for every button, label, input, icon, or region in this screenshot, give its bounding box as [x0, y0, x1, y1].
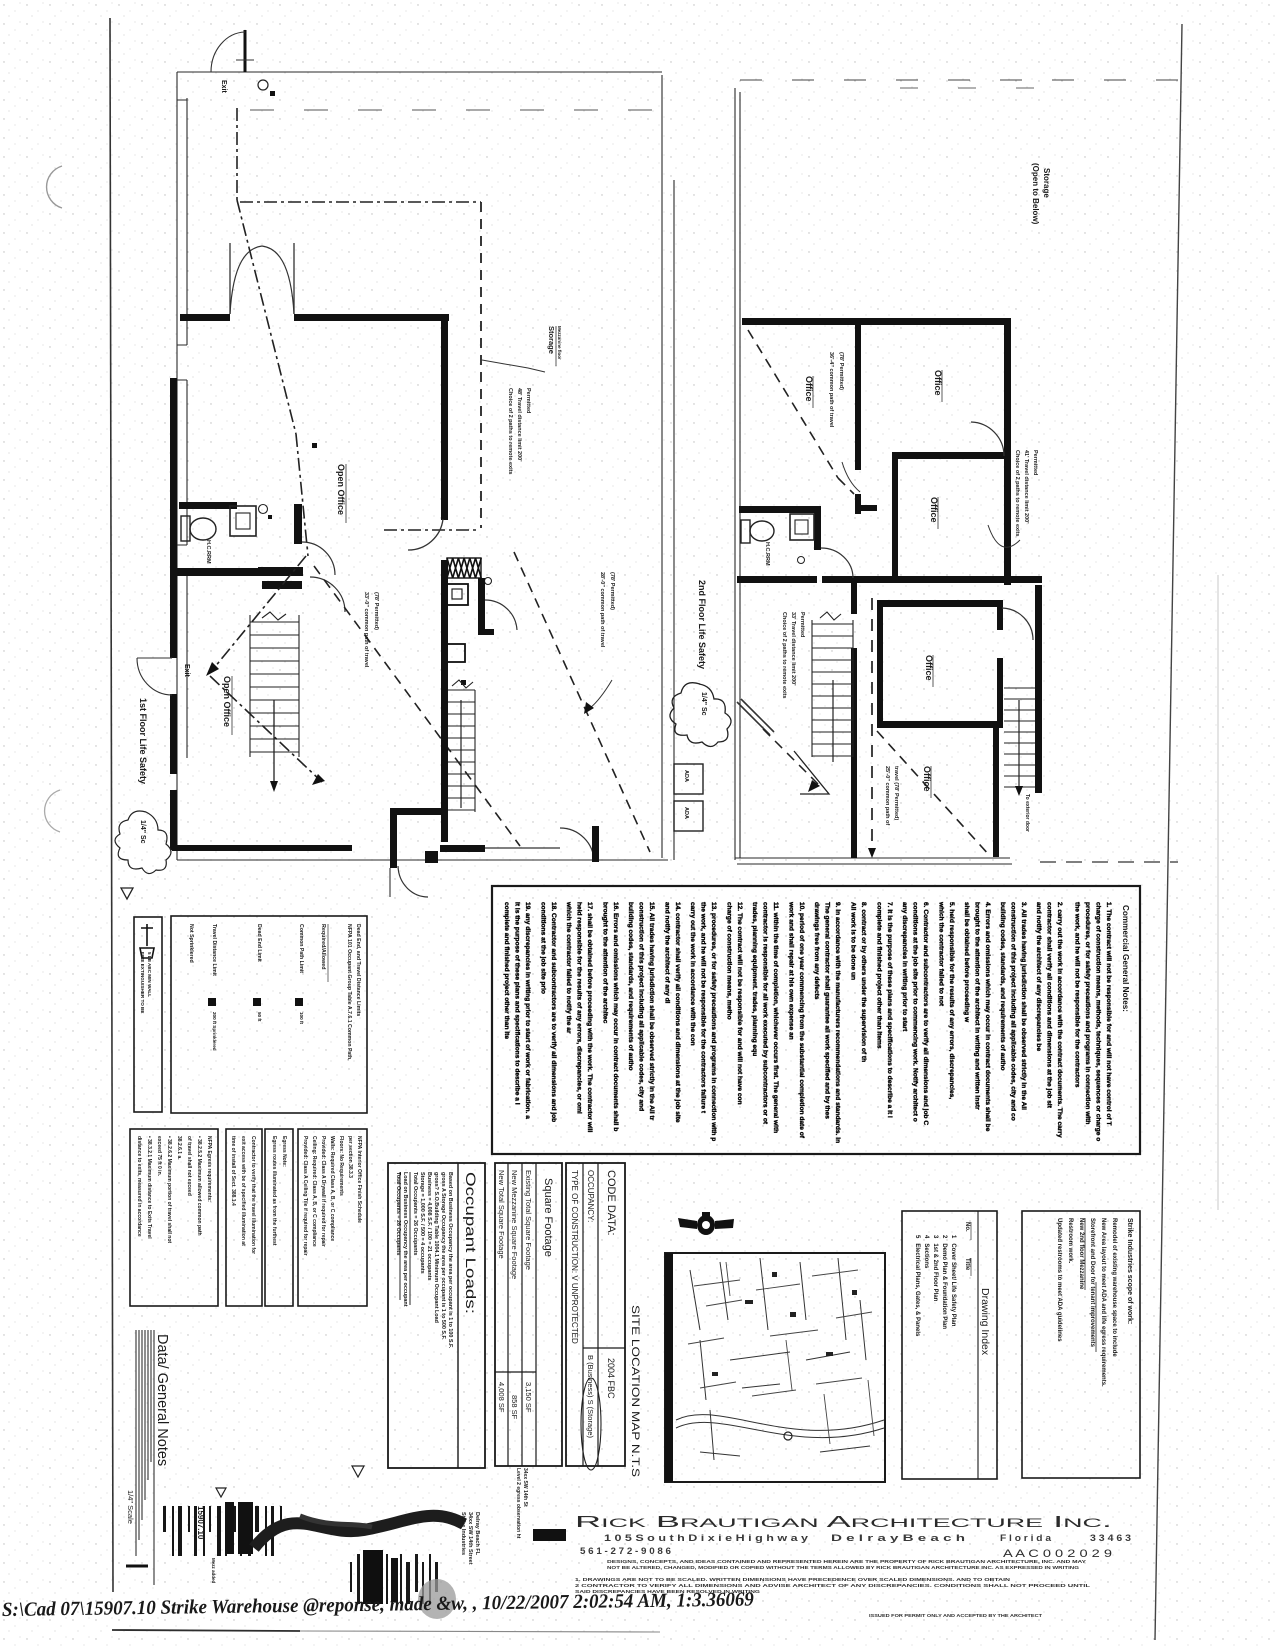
svg-text:Choice of 2 paths to remote ex: Choice of 2 paths to remote exits [507, 388, 513, 475]
svg-text:Remodel of existing warehouse: Remodel of existing warehouse space to i… [1111, 1218, 1117, 1357]
svg-text:TYPE OF CONSTRUCTION: V UNPRO: TYPE OF CONSTRUCTION: V UNPROTECTED [570, 1170, 579, 1344]
svg-text:carry out the work in accordan: carry out the work in accordance with th… [689, 902, 696, 1046]
svg-text:work and shall repair at his o: work and shall repair at his own expense… [788, 901, 795, 1040]
svg-text:Office: Office [933, 370, 943, 396]
svg-text:Dead End Limit: Dead End Limit [256, 924, 262, 962]
svg-text:• 38.2.5.2 Maximum allowed co: • 38.2.5.2 Maximum allowed common path [196, 1136, 202, 1236]
svg-text:conditions at the job site pri: conditions at the job site prio [540, 902, 547, 994]
svg-text:4,008 SF: 4,008 SF [497, 1382, 506, 1413]
svg-text:To exterior door: To exterior door [1024, 794, 1030, 832]
svg-text:Choice of 2 paths to remote ex: Choice of 2 paths to remote exits [781, 612, 787, 699]
svg-text:• 38.3.2.1 Maximum distance t: • 38.3.2.1 Maximum distance to Exits Tra… [146, 1136, 152, 1239]
svg-text:1 0 5 S o u t h D i x i e H: 1 0 5 S o u t h D i x i e H i g h w a y [604, 1533, 808, 1543]
svg-text:5 6 1 - 2 7 2 - 9 0 8 6: 5 6 1 - 2 7 2 - 9 0 8 6 [580, 1546, 671, 1556]
svg-text:time of install of Sect. 388.1: time of install of Sect. 388.1.4 [230, 1136, 236, 1206]
svg-text:10. period of one year commen: 10. period of one year commencing from t… [798, 902, 805, 1139]
svg-text:Commercial General Notes:: Commercial General Notes: [1121, 905, 1131, 1012]
svg-text:Level 2 egress observation ht: Level 2 egress observation ht [515, 1468, 521, 1539]
svg-text:Existing Total Square Footage: Existing Total Square Footage [524, 1170, 533, 1270]
svg-text:which the contractor failed to: which the contractor failed to not [938, 901, 945, 1007]
svg-text:2 CONTRACTOR TO VERIFY ALL DI: 2 CONTRACTOR TO VERIFY ALL DIMENSIONS AN… [575, 1583, 1090, 1588]
svg-text:ADA: ADA [683, 807, 689, 819]
svg-text:5 Electrical Plans, Gates, &: 5 Electrical Plans, Gates, & Panels [914, 1235, 920, 1337]
svg-text:SITE LOCATION MAP N.T.S: SITE LOCATION MAP N.T.S [629, 1305, 641, 1477]
svg-text:Based on Business Occupancy t: Based on Business Occupancy the area per… [447, 1172, 453, 1349]
svg-text:Strike Industries: Strike Industries [460, 1512, 466, 1555]
svg-text:1. DRAWINGS ARE NOT TO BE SCAL: 1. DRAWINGS ARE NOT TO BE SCALED. WRITTE… [575, 1577, 1011, 1582]
svg-text:3 1st & 2nd Floor Plan: 3 1st & 2nd Floor Plan [932, 1235, 938, 1302]
svg-text:8. contract or by others unde: 8. contract or by others under the super… [860, 902, 867, 1062]
svg-text:and notify the architect of an: and notify the architect of any di [664, 902, 671, 1004]
svg-text:2 Demo Plan & Foundation Pla: 2 Demo Plan & Foundation Plan [941, 1235, 947, 1329]
svg-text:OCCUPANCY:: OCCUPANCY: [586, 1170, 595, 1222]
svg-text:Egress routes illuminated as f: Egress routes illuminated as from the fu… [271, 1136, 277, 1246]
svg-text:3 3 4 6 3: 3 3 4 6 3 [1090, 1533, 1131, 1543]
svg-text:charge of construction means,: charge of construction means, metho [726, 902, 733, 1020]
svg-text:FIRE EXTINGUISHER TO BE: FIRE EXTINGUISHER TO BE [140, 952, 145, 1013]
svg-text:DESIGNS, CONCEPTS, AND IDEAS C: DESIGNS, CONCEPTS, AND IDEAS CONTAINED A… [607, 1559, 1086, 1564]
svg-text:6. Contractor and subcontract: 6. Contractor and subcontractors are to … [922, 902, 929, 1125]
svg-text:2nd Floor Life Safety: 2nd Floor Life Safety [697, 580, 707, 669]
svg-text:and notify the architect of an: and notify the architect of any discrepa… [1035, 902, 1042, 1051]
svg-text:NFPA 101 Occupant Group Table: NFPA 101 Occupant Group Table A.7.6.1 Co… [346, 924, 352, 1061]
svg-text:Egress Note:: Egress Note: [281, 1136, 287, 1167]
svg-text:Storage: Storage [547, 326, 556, 354]
svg-text:The general contractor shall g: The general contractor shall guarantee a… [824, 902, 831, 1119]
svg-text:Permitted: Permitted [525, 388, 531, 413]
svg-text:Storefront and Door for tenan: Storefront and Door for tenant improveme… [1089, 1218, 1095, 1348]
svg-text:brought to the attention of th: brought to the attention of the architec [602, 902, 609, 1024]
svg-text:New 2nd floor Mezzanine: New 2nd floor Mezzanine [1078, 1218, 1084, 1290]
svg-text:Common Path Limit: Common Path Limit [298, 924, 304, 973]
svg-text:Business = 4,008 S.F. / 100 =: Business = 4,008 S.F. / 100 = 21 occupan… [426, 1172, 432, 1280]
svg-text:25'-0" common path of: 25'-0" common path of [884, 766, 890, 825]
svg-text:16. Errors and omissions whic: 16. Errors and omissions which may occur… [612, 902, 619, 1131]
svg-text:Mezzanine floor: Mezzanine floor [557, 326, 562, 360]
svg-text:200 ft Sprinklered: 200 ft Sprinklered [212, 1012, 217, 1051]
svg-text:New Total Square Footage: New Total Square Footage [497, 1170, 506, 1259]
svg-text:41' Travel distance limit 200': 41' Travel distance limit 200' [1023, 450, 1029, 524]
svg-text:Exit: Exit [220, 80, 227, 94]
svg-text:7. It is the purpose of these: 7. It is the purpose of these plans and … [886, 902, 893, 1118]
svg-text:All work is to be done un: All work is to be done un [850, 902, 857, 980]
svg-text:38.2.6.1 a.: 38.2.6.1 a. [176, 1136, 182, 1160]
svg-text:15907.10: 15907.10 [196, 1506, 205, 1540]
svg-text:ISSUED FOR PERMIT ONLY AND ACC: ISSUED FOR PERMIT ONLY AND ACCEPTED BY T… [869, 1613, 1042, 1618]
svg-text:Mezz added: Mezz added [211, 1558, 216, 1584]
svg-text:Delray Beach FL: Delray Beach FL [474, 1512, 480, 1556]
svg-text:the work, and he will not be r: the work, and he will not be responsible… [700, 902, 707, 1114]
svg-text:Occupant Loads:: Occupant Loads: [463, 1172, 479, 1314]
svg-text:14. contractor shall verify a: 14. contractor shall verify all conditio… [674, 902, 681, 1123]
svg-text:travel (78' Permitted): travel (78' Permitted) [893, 766, 899, 820]
svg-text:Storage = 1,000 S.F. / 500 = 4: Storage = 1,000 S.F. / 500 = 4 occupants [419, 1172, 425, 1274]
svg-text:any discrepancies in writing p: any discrepancies in writing prior to st… [901, 902, 908, 1032]
svg-text:brought to the attention of th: brought to the attention of the architec… [974, 902, 981, 1110]
svg-text:48' Travel distance limit 200': 48' Travel distance limit 200' [516, 388, 522, 462]
svg-text:Travel Distance Limit: Travel Distance Limit [211, 924, 217, 976]
svg-text:Square Footage: Square Footage [542, 1178, 554, 1257]
svg-text:Required/Allowed: Required/Allowed [320, 924, 326, 970]
svg-text:2. carry out the work in acco: 2. carry out the work in accordance with… [1056, 902, 1063, 1138]
svg-text:858 SF: 858 SF [510, 1395, 519, 1420]
svg-text:building codes, standards, and: building codes, standards, and requireme… [627, 902, 634, 1071]
svg-text:held responsible for the resul: held responsible for the results of any … [576, 902, 583, 1114]
svg-text:construction of this project i: construction of this project including a… [1010, 902, 1017, 1121]
svg-text:Office: Office [929, 497, 939, 523]
svg-text:H.C.RRM: H.C.RRM [764, 542, 770, 566]
svg-text:13. procedures, or for safety: 13. procedures, or for safety precaution… [710, 902, 717, 1141]
svg-text:exit access with be of specifi: exit access with be of specified illumin… [240, 1136, 246, 1246]
svg-text:New Area layout to meet ADA an: New Area layout to meet ADA and life egr… [1100, 1218, 1106, 1387]
svg-text:procedures, or for safety prec: procedures, or for safety precautions an… [1084, 902, 1091, 1124]
svg-text:CODE DATA:: CODE DATA: [605, 1170, 617, 1236]
svg-text:15. All trades having jurisdi: 15. All trades having jurisdiction shall… [648, 902, 655, 1121]
svg-text:NFPA Interior Office Finish Sc: NFPA Interior Office Finish Schedule [356, 1136, 362, 1223]
svg-text:2004 FBC: 2004 FBC [606, 1358, 616, 1399]
svg-text:3,150 SF: 3,150 SF [524, 1382, 533, 1413]
svg-text:Office: Office [922, 766, 932, 792]
svg-text:Strike Industries scope of wor: Strike Industries scope of work: [1126, 1218, 1133, 1324]
svg-text:trades, planning equipment. t: trades, planning equipment. trades, plan… [751, 902, 758, 1056]
svg-text:Permitted: Permitted [799, 612, 805, 637]
svg-text:1/4" Sc: 1/4" Sc [139, 820, 146, 844]
svg-text:Updated restrooms to meet ADA: Updated restrooms to meet ADA guidelines [1056, 1218, 1062, 1342]
svg-text:(Open to Below): (Open to Below) [1031, 163, 1040, 225]
svg-text:Total Occupants = 26 Occupants: Total Occupants = 26 Occupants [412, 1172, 418, 1255]
svg-text:3. All trades having jurisdic: 3. All trades having jurisdiction shall … [1020, 902, 1027, 1110]
svg-text:(78' Permitted): (78' Permitted) [373, 592, 379, 630]
svg-text:F l o r i d a: F l o r i d a [1000, 1533, 1052, 1543]
svg-text:B (Business) S (Storage): B (Business) S (Storage) [586, 1355, 595, 1438]
svg-text:Provided: Class A Drywall if r: Provided: Class A Drywall if required fo… [320, 1136, 326, 1247]
svg-text:Load on Business Occupancy th: Load on Business Occupancy the area per … [402, 1172, 408, 1307]
svg-text:per section 38.3.3: per section 38.3.3 [347, 1136, 353, 1178]
svg-text:4 Sections: 4 Sections [923, 1235, 929, 1269]
svg-text:34xx SW 14th St: 34xx SW 14th St [522, 1468, 528, 1507]
svg-text:Data/ General Notes: Data/ General Notes [154, 1334, 170, 1466]
svg-text:exceed 75 ft 0 in.: exceed 75 ft 0 in. [156, 1136, 162, 1177]
svg-text:distance to exits, measured in: distance to exits, measured in accordanc… [136, 1136, 142, 1237]
svg-text:Ceiling: Required: Class A, B,: Ceiling: Required: Class A, B, or C comp… [311, 1136, 317, 1247]
svg-text:which the contractor failed to: which the contractor failed to notify th… [565, 901, 572, 1034]
svg-text:gross A Storage Occupancy the: gross A Storage Occupancy the area per o… [440, 1172, 446, 1340]
svg-text:5 LB ABC MIN WALL: 5 LB ABC MIN WALL [147, 952, 152, 997]
svg-text:Drawing Index: Drawing Index [979, 1288, 991, 1356]
svg-text:18. Contractor and subcontrac: 18. Contractor and subcontractors are to… [550, 902, 557, 1122]
svg-text:1/4" Scale: 1/4" Scale [126, 1490, 135, 1524]
svg-text:Office: Office [804, 376, 814, 402]
svg-text:the work, and he will not be r: the work, and he will not be responsible… [1074, 902, 1081, 1088]
svg-text:of travel shall not exceed: of travel shall not exceed [186, 1136, 192, 1196]
svg-text:Open Office: Open Office [222, 676, 232, 727]
svg-text:H.C.RRM: H.C.RRM [205, 540, 211, 564]
svg-text:19. any discrepancies in writ: 19. any discrepancies in writing prior t… [524, 902, 531, 1119]
svg-text:(78' Permitted): (78' Permitted) [609, 572, 615, 610]
svg-text:4. Errors and omissions which: 4. Errors and omissions which may occur … [984, 902, 991, 1132]
svg-text:33' Travel distance limit 200': 33' Travel distance limit 200' [790, 612, 796, 686]
svg-text:(78' Permitted): (78' Permitted) [838, 352, 844, 390]
svg-text:34xx SW 14th Street: 34xx SW 14th Street [467, 1512, 473, 1565]
svg-text:Permitted: Permitted [1032, 450, 1038, 475]
svg-text:D e l r a y B e a c h: D e l r a y B e a c h [831, 1533, 965, 1543]
svg-text:Provided: Class A Ceiling Tile: Provided: Class A Ceiling Tile if requir… [302, 1136, 308, 1256]
svg-text:36'-4" common path of travel: 36'-4" common path of travel [828, 352, 834, 428]
svg-text:12. The contract will not be: 12. The contract will not be responsible… [736, 902, 743, 1105]
svg-text:conditions at the job site pri: conditions at the job site prior to comm… [912, 902, 919, 1122]
svg-text:1 Cover Sheet/ Life Safety P: 1 Cover Sheet/ Life Safety Plan [950, 1235, 956, 1327]
svg-text:contractor is responsible for: contractor is responsible for all work e… [762, 902, 769, 1125]
svg-text:1. The contract will not be r: 1. The contract will not be responsible … [1105, 902, 1112, 1125]
svg-text:drawings free from any defects: drawings free from any defects [813, 902, 820, 1000]
svg-text:contractor shall verify all co: contractor shall verify all conditions a… [1046, 902, 1053, 1109]
svg-text:1/4" Sc: 1/4" Sc [700, 692, 707, 716]
svg-text:5. held responsible for the r: 5. held responsible for the results of a… [948, 902, 955, 1099]
svg-text:Walls: Required Class A, B, or: Walls: Required Class A, B, or C complia… [329, 1136, 335, 1241]
svg-text:New Mezzanine Square Footage: New Mezzanine Square Footage [510, 1170, 519, 1279]
svg-text:Storage: Storage [1042, 168, 1051, 198]
svg-text:28'-0" common path of travel: 28'-0" common path of travel [599, 572, 605, 648]
svg-text:Open Office: Open Office [336, 464, 346, 515]
svg-text:Office: Office [924, 655, 934, 681]
svg-text:NFPA Egress requirements:: NFPA Egress requirements: [206, 1136, 212, 1202]
svg-text:shall be obtained before proce: shall be obtained before proceeding w [963, 902, 970, 1023]
svg-text:charge of construction means,: charge of construction means, methods, t… [1095, 902, 1102, 1141]
svg-text:33'-0" common path of travel: 33'-0" common path of travel [363, 592, 369, 668]
svg-text:100 ft: 100 ft [299, 1012, 304, 1024]
svg-text:building codes, standards, and: building codes, standards, and requireme… [999, 902, 1006, 1071]
svg-text:Contractor to verify that the: Contractor to verify that the travel ill… [250, 1136, 256, 1254]
svg-text:complete and finished project: complete and finished project other than… [503, 902, 510, 1039]
svg-text:NOT BE ALTERED, CHANGED, MODIF: NOT BE ALTERED, CHANGED, MODIFIED OR COP… [607, 1565, 1080, 1570]
svg-text:11. within the time of comple: 11. within the time of completion, which… [772, 902, 779, 1133]
svg-text:complete and finished project: complete and finished project other than… [876, 902, 883, 1049]
svg-text:Choice of 2 paths to remote ex: Choice of 2 paths to remote exits [1014, 450, 1020, 537]
svg-text:Dead End, and Travel Distance: Dead End, and Travel Distance Limits [355, 924, 361, 1016]
svg-text:gross? S.O.Building Table 100: gross? S.O.Building Table 1004.1 Minimum… [433, 1172, 439, 1323]
svg-text:Exit: Exit [183, 664, 190, 678]
svg-text:9. in accordance with the man: 9. in accordance with the manufacturers … [834, 902, 841, 1143]
svg-text:50 ft: 50 ft [257, 1012, 262, 1022]
svg-text:• 38.2.6.2 Maximum portion of: • 38.2.6.2 Maximum portion of travel sha… [166, 1136, 172, 1243]
svg-text:ADA: ADA [683, 770, 689, 782]
svg-text:It is the purpose of these pla: It is the purpose of these plans and spe… [514, 902, 521, 1105]
svg-text:Title: Title [964, 1258, 970, 1271]
svg-text:Restroom work.: Restroom work. [1067, 1218, 1073, 1264]
svg-text:construction of this project i: construction of this project including a… [638, 902, 645, 1111]
svg-text:No.: No. [964, 1222, 970, 1232]
svg-text:1st Floor Life Safety: 1st Floor Life Safety [138, 698, 148, 784]
svg-text:Floors: No Requirements: Floors: No Requirements [338, 1136, 344, 1196]
svg-text:Not Sprinklered: Not Sprinklered [188, 924, 194, 963]
svg-text:17. shall be obtained before: 17. shall be obtained before proceeding … [586, 902, 593, 1133]
